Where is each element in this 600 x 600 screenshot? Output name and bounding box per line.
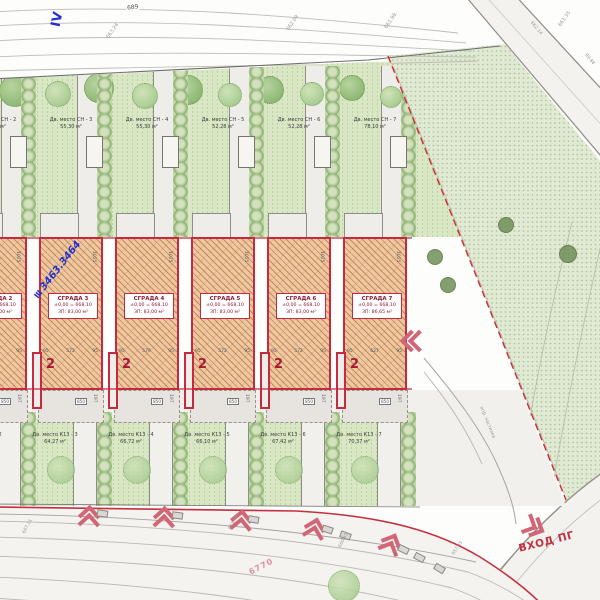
width-dimensions: 9557295 [43, 349, 98, 354]
unit-number: 2 [350, 357, 359, 372]
plot-label: Дв. место СН - 4 55,30 м² [115, 117, 179, 132]
walkway-bend [344, 213, 383, 238]
upper-gardens-band: Дв. место СН - 2 55,30 м² Дв. место СН -… [0, 62, 466, 237]
plot-name: Дв. место СН - 5 [202, 117, 245, 124]
site-plan: Дв. место СН - 2 55,30 м² Дв. место СН -… [0, 0, 600, 600]
shed [86, 136, 103, 168]
hedge [97, 412, 112, 506]
building-area: ЗП: 83,00 м² [0, 310, 12, 316]
dimension-label: 197 [92, 394, 97, 403]
walkway-bend [268, 213, 307, 238]
dimension-label: 850 [75, 398, 87, 405]
building: 1025 СГРАДА 7 ±0,00 = 668,10 ЗП: 86,65 м… [343, 237, 407, 390]
plot-name: Дв. место К13 - 4 [108, 432, 153, 439]
plot-area: 52,28 м² [288, 124, 310, 131]
dimension-label: 197 [244, 394, 249, 403]
plot-label: Дв. место СН - 7 78,10 м² [343, 117, 407, 132]
lower-plot: 850 197 Дв. место К13 - 3 64,27 м² [39, 390, 115, 506]
tree-icon [199, 456, 227, 484]
tree-icon [328, 570, 360, 600]
plot-name: Дв. место СН - 3 [50, 117, 93, 124]
entrance-door [32, 352, 42, 409]
lower-gardens-band: 850 197 Дв. место К13 - 2 62,40 м² 850 1… [0, 390, 572, 506]
direction-arrow-icon [403, 332, 425, 352]
plot-area: 55,30 м² [60, 124, 82, 131]
plot-label: Дв. место СН - 2 55,30 м² [0, 117, 27, 132]
building-label: СГРАДА 5 ±0,00 = 668,10 ЗП: 83,00 м² [200, 293, 250, 319]
walkway-bend [192, 213, 231, 238]
lower-plot: 850 197 Дв. место К13 - 5 66,10 м² [191, 390, 267, 506]
walkway-bend [116, 213, 155, 238]
elevation-label: 662.09 [285, 14, 300, 32]
plot-name: Дв. место СН - 7 [354, 117, 397, 124]
building: 1025 СГРАДА 2 ±0,00 = 668,10 ЗП: 83,00 м… [0, 237, 27, 390]
dimension-label: 197 [320, 394, 325, 403]
curb-stone [413, 552, 426, 563]
tree-icon [123, 456, 151, 484]
plot-name: Дв. место К13 - 7 [336, 432, 381, 439]
dimension-label: 1025 [243, 251, 248, 262]
width-dimensions: 9557995 [119, 349, 174, 354]
plot-name: Дв. место К13 - 6 [260, 432, 305, 439]
entrance-door [108, 352, 118, 409]
plot-label: Дв. место СН - 6 52,28 м² [267, 117, 331, 132]
entrance-door [336, 352, 346, 409]
walkway-bend [40, 213, 79, 238]
shed [238, 136, 255, 168]
building: 1025 СГРАДА 6 ±0,00 = 668,10 ЗП: 83,00 м… [267, 237, 331, 390]
plot-area: 55,30 м² [136, 124, 158, 131]
dimension-label: 850 [0, 398, 11, 405]
elevation-label: 663.24 [105, 22, 120, 40]
unit-number: 2 [122, 357, 131, 372]
dimension-label: 197 [396, 394, 401, 403]
hedge [325, 412, 340, 506]
dimension-label: 1025 [167, 251, 172, 262]
building-area: ЗП: 83,00 м² [210, 310, 240, 316]
hedge [173, 412, 188, 506]
elevation-label: 661.35 [557, 10, 572, 28]
hedge [21, 412, 36, 506]
width-dimensions: 9562795 [347, 349, 402, 354]
plot-label: Дв. место СН - 3 55,30 м² [39, 117, 103, 132]
road-station-label: 89.88 [583, 53, 595, 66]
road-top-right [462, 0, 600, 205]
curb-stone [97, 509, 109, 517]
building-label: СГРАДА 2 ±0,00 = 668,10 ЗП: 83,00 м² [0, 293, 22, 319]
plot-name: Дв. место СН - 2 [0, 117, 16, 124]
plot-label: Дв. место СН - 5 52,28 м² [191, 117, 255, 132]
tree-icon [498, 217, 514, 233]
plot-label: Дв. место К13 - 4 66,72 м² [102, 432, 160, 447]
plot-label: Дв. место К13 - 5 66,10 м² [178, 432, 236, 447]
terrace [0, 390, 28, 423]
lower-plot: 850 197 Дв. место К13 - 7 70,37 м² [343, 390, 419, 506]
building: 1025 СГРАДА 4 ±0,00 = 668,10 ЗП: 83,00 м… [115, 237, 179, 390]
hedge [249, 412, 264, 506]
building-label: СГРАДА 7 ±0,00 = 668,10 ЗП: 86,65 м² [352, 293, 402, 319]
shed [390, 136, 407, 168]
dimension-label: 197 [16, 394, 21, 403]
plot-area: 55,30 м² [0, 124, 6, 131]
plot-name: Дв. место СН - 4 [126, 117, 169, 124]
curb-stone [321, 524, 334, 534]
tree-icon [218, 83, 242, 107]
plot-area: 78,10 м² [364, 124, 386, 131]
road-elevation-label: 657.45 [451, 541, 464, 557]
road-elevation-label: 667.31 [22, 518, 34, 534]
plot-area: 67,42 м² [272, 439, 294, 446]
tree-icon [559, 245, 577, 263]
shed [314, 136, 331, 168]
garage-entrance-arrow-icon [518, 511, 546, 538]
plot-label: Дв. место К13 - 7 70,37 м² [330, 432, 388, 447]
dimension-label: 850 [303, 398, 315, 405]
tree-icon [300, 82, 324, 106]
plot-name: Дв. место К13 - 2 [0, 432, 2, 439]
unit-number: 2 [198, 357, 207, 372]
dimension-label: 1025 [319, 251, 324, 262]
dimension-label: 1025 [91, 251, 96, 262]
curb-stone [433, 563, 446, 575]
building-area: ЗП: 83,00 м² [134, 310, 164, 316]
road-dimension-label: 6770 [247, 557, 274, 577]
dimension-label: 1025 [395, 251, 400, 262]
building: 1025 СГРАДА 5 ±0,00 = 668,10 ЗП: 83,00 м… [191, 237, 255, 390]
shed [10, 136, 27, 168]
lower-plot: 850 197 Дв. место К13 - 6 67,42 м² [267, 390, 343, 506]
building-area: ЗП: 83,00 м² [58, 310, 88, 316]
green-area [388, 44, 600, 600]
tree-icon [440, 277, 456, 293]
width-dimensions: 9557295 [0, 349, 22, 354]
plot-label: Дв. место К13 - 3 64,27 м² [26, 432, 84, 447]
plot-label: Дв. место К13 - 6 67,42 м² [254, 432, 312, 447]
tree-icon [427, 249, 443, 265]
lower-plot: 850 197 Дв. место К13 - 4 66,72 м² [115, 390, 191, 506]
tree-icon [132, 83, 158, 109]
plot-name: Дв. место К13 - 3 [32, 432, 77, 439]
entrance-door [184, 352, 194, 409]
road-station-label: 662.14 [529, 21, 543, 36]
tree-icon [351, 456, 379, 484]
dimension-label: 197 [168, 394, 173, 403]
curb-stone [172, 511, 184, 519]
tree-icon [339, 75, 365, 101]
shed [162, 136, 179, 168]
walkway-bend [0, 213, 3, 238]
dimension-label: 1025 [15, 251, 20, 262]
direction-arrow-icon [77, 507, 98, 530]
dimension-label: 850 [379, 398, 391, 405]
width-dimensions: 9557295 [271, 349, 326, 354]
elevation-label: 661.99 [383, 12, 398, 30]
width-dimensions: 9557295 [195, 349, 250, 354]
unit-number: 2 [46, 357, 55, 372]
plot-area: 66,10 м² [196, 439, 218, 446]
building-area: ЗП: 86,65 м² [362, 310, 392, 316]
tree-icon [380, 86, 402, 108]
tree-icon [45, 81, 71, 107]
building-label: СГРАДА 3 ±0,00 = 668,10 ЗП: 83,00 м² [48, 293, 98, 319]
contour-elevation-label: 689 [126, 3, 140, 11]
plot-name: Дв. место СН - 6 [278, 117, 321, 124]
unit-number: 2 [274, 357, 283, 372]
building-area: ЗП: 83,00 м² [286, 310, 316, 316]
plot-area: 64,27 м² [44, 439, 66, 446]
direction-arrow-icon [152, 508, 173, 531]
building-label: СГРАДА 6 ±0,00 = 668,10 ЗП: 83,00 м² [276, 293, 326, 319]
plot-area: 52,28 м² [212, 124, 234, 131]
curb-stone [397, 544, 410, 555]
dimension-label: 850 [227, 398, 239, 405]
tree-icon [275, 456, 303, 484]
plot-name: Дв. место К13 - 5 [184, 432, 229, 439]
hedge [401, 412, 416, 506]
plot-label: Дв. место К13 - 2 62,40 м² [0, 432, 8, 447]
plot-area: 70,37 м² [348, 439, 370, 446]
quarter-number: IV [49, 11, 67, 29]
plot-area: 66,72 м² [120, 439, 142, 446]
dimension-label: 850 [151, 398, 163, 405]
building-label: СГРАДА 4 ±0,00 = 668,10 ЗП: 83,00 м² [124, 293, 174, 319]
entrance-door [260, 352, 270, 409]
tree-icon [47, 456, 75, 484]
